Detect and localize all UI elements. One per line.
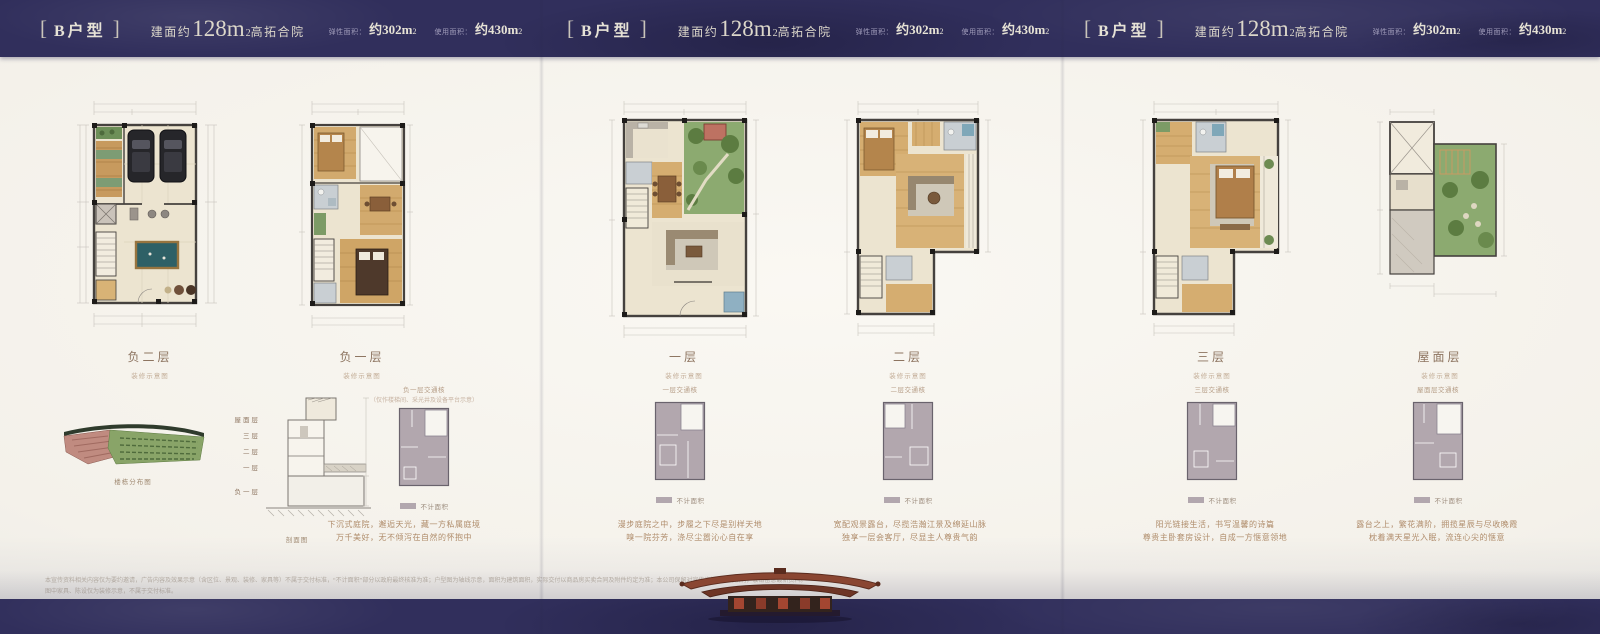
roof-room [1390, 174, 1434, 210]
floor-label-level3: 三层 装修示意图 [1142, 348, 1282, 380]
fold-line [539, 0, 544, 634]
bench [1220, 224, 1250, 230]
courtyard-garden [684, 122, 744, 214]
floor-name: 屋面层 [1370, 348, 1510, 365]
stairs [314, 239, 334, 281]
master-bedroom [340, 239, 402, 303]
roof-garden [1434, 144, 1496, 256]
stat-value: 约430m [1519, 19, 1562, 38]
stat-sup: 2 [939, 27, 943, 36]
floor-name: 负一层 [292, 348, 432, 365]
bracket-left: [ [33, 16, 54, 41]
floor-name: 负二层 [80, 348, 220, 365]
area-number: 128m [192, 16, 244, 42]
stat-flexible-area: 弹性面积： 约302m 2 [856, 19, 944, 38]
mini-legend: 不计面积 [354, 501, 494, 511]
bracket-right: ] [1150, 16, 1171, 41]
shower [962, 124, 974, 136]
stat-flexible-area: 弹性面积： 约302m 2 [1373, 19, 1461, 38]
unit-type-name: B户型 [1098, 17, 1150, 41]
bracket-right: ] [633, 16, 654, 41]
brochure-page: [ B户型 ] 建面约 128m 2 高拓合院 弹性面积： 约302m 2 使用… [0, 0, 1600, 634]
closet [912, 122, 940, 146]
floor-name: 二层 [838, 348, 978, 365]
floor-label-basement1: 负一层 装修示意图 [292, 348, 432, 380]
lightwell-garden [314, 213, 326, 235]
chinese-roof-ornament [672, 560, 888, 624]
copy-line: 宽配观景露台，尽揽浩瀚江景及绵延山脉 [795, 518, 1025, 531]
legend-text: 不计面积 [1435, 495, 1463, 505]
bathroom [1196, 122, 1226, 152]
dining-table [658, 176, 676, 202]
floor-label-basement2: 负二层 装修示意图 [80, 348, 220, 380]
mini-title: 负一层交通核 [354, 384, 494, 394]
bathroom [944, 122, 976, 150]
mini-note: （仅作楼梯间、采光井及设备平台示意） [354, 395, 494, 404]
stat-sup: 2 [1456, 27, 1460, 36]
plant-bed [96, 127, 122, 139]
area-suffix: 高拓合院 [778, 23, 832, 40]
coffee-table [686, 246, 702, 257]
stairs [1156, 256, 1178, 298]
mini-diagram-level3: 三层交通核 不计面积 [1142, 384, 1282, 505]
bathroom [1182, 256, 1208, 280]
area-prefix: 建面约 [678, 23, 719, 40]
legend-swatch [884, 497, 900, 503]
mini-title: 屋面层交通核 [1368, 384, 1508, 394]
stat-label: 使用面积： [961, 27, 999, 37]
stat-value: 约430m [475, 19, 518, 38]
storage [96, 280, 116, 300]
copy-line: 漫步庭院之中，步履之下尽是别样天地 [575, 518, 805, 531]
bathroom [314, 185, 338, 209]
stair-bulkhead [1390, 122, 1434, 174]
floor-label-roof: 屋面层 装修示意图 [1370, 348, 1510, 380]
legend-swatch [400, 503, 416, 509]
tatami-room [96, 141, 122, 197]
legend-text: 不计面积 [905, 495, 933, 505]
stat-usable-area: 使用面积： 约430m 2 [1478, 19, 1566, 38]
legend-swatch [656, 497, 672, 503]
legend-swatch [1188, 497, 1204, 503]
section-floor-2: 二层 [222, 446, 260, 456]
mini-plan-shape [882, 401, 934, 481]
area-stats: 弹性面积： 约302m 2 使用面积： 约430m 2 [856, 19, 1068, 38]
table [928, 192, 940, 204]
area-title: 建面约 128m 2 高拓合院 [678, 16, 832, 42]
void-space [360, 127, 402, 181]
dining-room [652, 162, 682, 218]
area-stats: 弹性面积： 约302m 2 使用面积： 约430m 2 [329, 19, 541, 38]
stairs [96, 232, 116, 276]
area-stats: 弹性面积： 约302m 2 使用面积： 约430m 2 [1373, 19, 1585, 38]
floor-name: 一层 [614, 348, 754, 365]
floor-label-level1: 一层 装修示意图 [614, 348, 754, 380]
stat-value: 约302m [896, 19, 939, 38]
legend-text: 不计面积 [421, 501, 449, 511]
stat-sup: 2 [518, 27, 522, 36]
stairs [860, 256, 882, 298]
mini-title: 三层交通核 [1142, 384, 1282, 394]
section-floor-1: 一层 [222, 462, 260, 472]
water-feature [724, 292, 744, 312]
floor-sublabel: 装修示意图 [1142, 370, 1282, 380]
balcony [966, 154, 976, 248]
mini-plan-shape [1412, 401, 1464, 481]
mini-diagram-level2: 二层交通核 不计面积 [838, 384, 978, 505]
stat-sup: 2 [412, 27, 416, 36]
mini-title: 一层交通核 [610, 384, 750, 394]
bathroom [886, 256, 912, 280]
area-title: 建面约 128m 2 高拓合院 [1195, 16, 1349, 42]
mini-plan-shape [654, 401, 706, 481]
mini-legend: 不计面积 [838, 495, 978, 505]
header-panel-2: [ B户型 ] 建面约 128m 2 高拓合院 弹性面积： 约302m 2 使用… [560, 0, 1067, 57]
floor-plan-level1 [604, 92, 764, 344]
elevator [96, 204, 116, 224]
site-plan-image [58, 422, 208, 474]
copy-line: 阳光链接生活，书写温馨的诗篇 [1100, 518, 1330, 531]
stat-value: 约302m [1413, 19, 1456, 38]
kitchen [626, 122, 668, 158]
mini-plan-shape [398, 407, 450, 487]
header-panel-1: [ B户型 ] 建面约 128m 2 高拓合院 弹性面积： 约302m 2 使用… [33, 0, 540, 57]
bracket-right: ] [106, 16, 127, 41]
section-floor-3: 三层 [222, 430, 260, 440]
section-floor-b1: 负一层 [222, 486, 260, 496]
mini-diagram-level1: 一层交通核 不计面积 [610, 384, 750, 505]
stat-value: 约302m [369, 19, 412, 38]
floor-sublabel: 装修示意图 [80, 370, 220, 380]
legend-swatch [1414, 497, 1430, 503]
area-number: 128m [1236, 16, 1288, 42]
area-title: 建面约 128m 2 高拓合院 [151, 16, 305, 42]
study [886, 284, 932, 312]
sofa [908, 176, 954, 184]
pavilion [704, 124, 726, 140]
terrace [1260, 156, 1278, 248]
copy-line: 下沉式庭院，邂逅天光，藏一方私属庭境 [289, 518, 519, 531]
floor-label-level2: 二层 装修示意图 [838, 348, 978, 380]
floor-plan-roof [1356, 106, 1514, 311]
car-icon [128, 130, 154, 182]
bracket-left: [ [1077, 16, 1098, 41]
bedroom [314, 127, 356, 179]
mini-plan-shape [1186, 401, 1238, 481]
stat-label: 弹性面积： [856, 27, 894, 37]
bathroom [314, 283, 336, 303]
flat-roof [1390, 210, 1434, 274]
mini-diagram-basement1: 负一层交通核 （仅作楼梯间、采光井及设备平台示意） 不计面积 [354, 384, 494, 511]
stat-usable-area: 使用面积： 约430m 2 [961, 19, 1049, 38]
car-icon [160, 130, 186, 182]
bathroom [626, 162, 652, 184]
study-room [360, 185, 402, 235]
stat-label: 使用面积： [1478, 27, 1516, 37]
floor-sublabel: 装修示意图 [614, 370, 754, 380]
mini-legend: 不计面积 [610, 495, 750, 505]
floor-plan-level2 [840, 92, 996, 344]
floor-sublabel: 装修示意图 [838, 370, 978, 380]
floor-sublabel: 装修示意图 [292, 370, 432, 380]
floor-plan-basement1 [296, 92, 418, 335]
area-number: 128m [719, 16, 771, 42]
floor-name: 三层 [1142, 348, 1282, 365]
stat-sup: 2 [1045, 27, 1049, 36]
floor-plan-level3 [1136, 92, 1296, 344]
sofa [666, 230, 718, 239]
mini-legend: 不计面积 [1142, 495, 1282, 505]
mini-title: 二层交通核 [838, 384, 978, 394]
closet [1182, 284, 1232, 312]
area-suffix: 高拓合院 [251, 23, 305, 40]
header-panel-3: [ B户型 ] 建面约 128m 2 高拓合院 弹性面积： 约302m 2 使用… [1077, 0, 1584, 57]
copy-line: 露台之上，繁花满阶，拥揽星辰与尽收晚霞 [1322, 518, 1552, 531]
fold-line [1060, 0, 1065, 634]
area-prefix: 建面约 [151, 23, 192, 40]
floor-sublabel: 装修示意图 [1370, 370, 1510, 380]
legend-text: 不计面积 [1209, 495, 1237, 505]
section-floor-roof: 屋面层 [222, 414, 260, 424]
mini-legend: 不计面积 [1368, 495, 1508, 505]
unit-type-name: B户型 [54, 17, 106, 41]
family-room [896, 154, 964, 248]
stat-label: 弹性面积： [329, 27, 367, 37]
legend-text: 不计面积 [677, 495, 705, 505]
unit-type-name: B户型 [581, 17, 633, 41]
walk-in-closet [1156, 122, 1192, 164]
stat-usable-area: 使用面积： 约430m 2 [434, 19, 522, 38]
billiard-table [136, 242, 178, 268]
stairs [626, 188, 648, 228]
site-plan-label: 楼栋分布图 [58, 476, 208, 486]
mini-diagram-roof: 屋面层交通核 不计面积 [1368, 384, 1508, 505]
shower [1212, 124, 1224, 136]
stat-label: 使用面积： [434, 27, 472, 37]
stat-sup: 2 [1562, 27, 1566, 36]
stat-value: 约430m [1002, 19, 1045, 38]
area-prefix: 建面约 [1195, 23, 1236, 40]
bracket-left: [ [560, 16, 581, 41]
area-suffix: 高拓合院 [1295, 23, 1349, 40]
stat-label: 弹性面积： [1373, 27, 1411, 37]
floor-plan-basement2 [72, 92, 232, 335]
living-room [652, 222, 744, 286]
stat-flexible-area: 弹性面积： 约302m 2 [329, 19, 417, 38]
